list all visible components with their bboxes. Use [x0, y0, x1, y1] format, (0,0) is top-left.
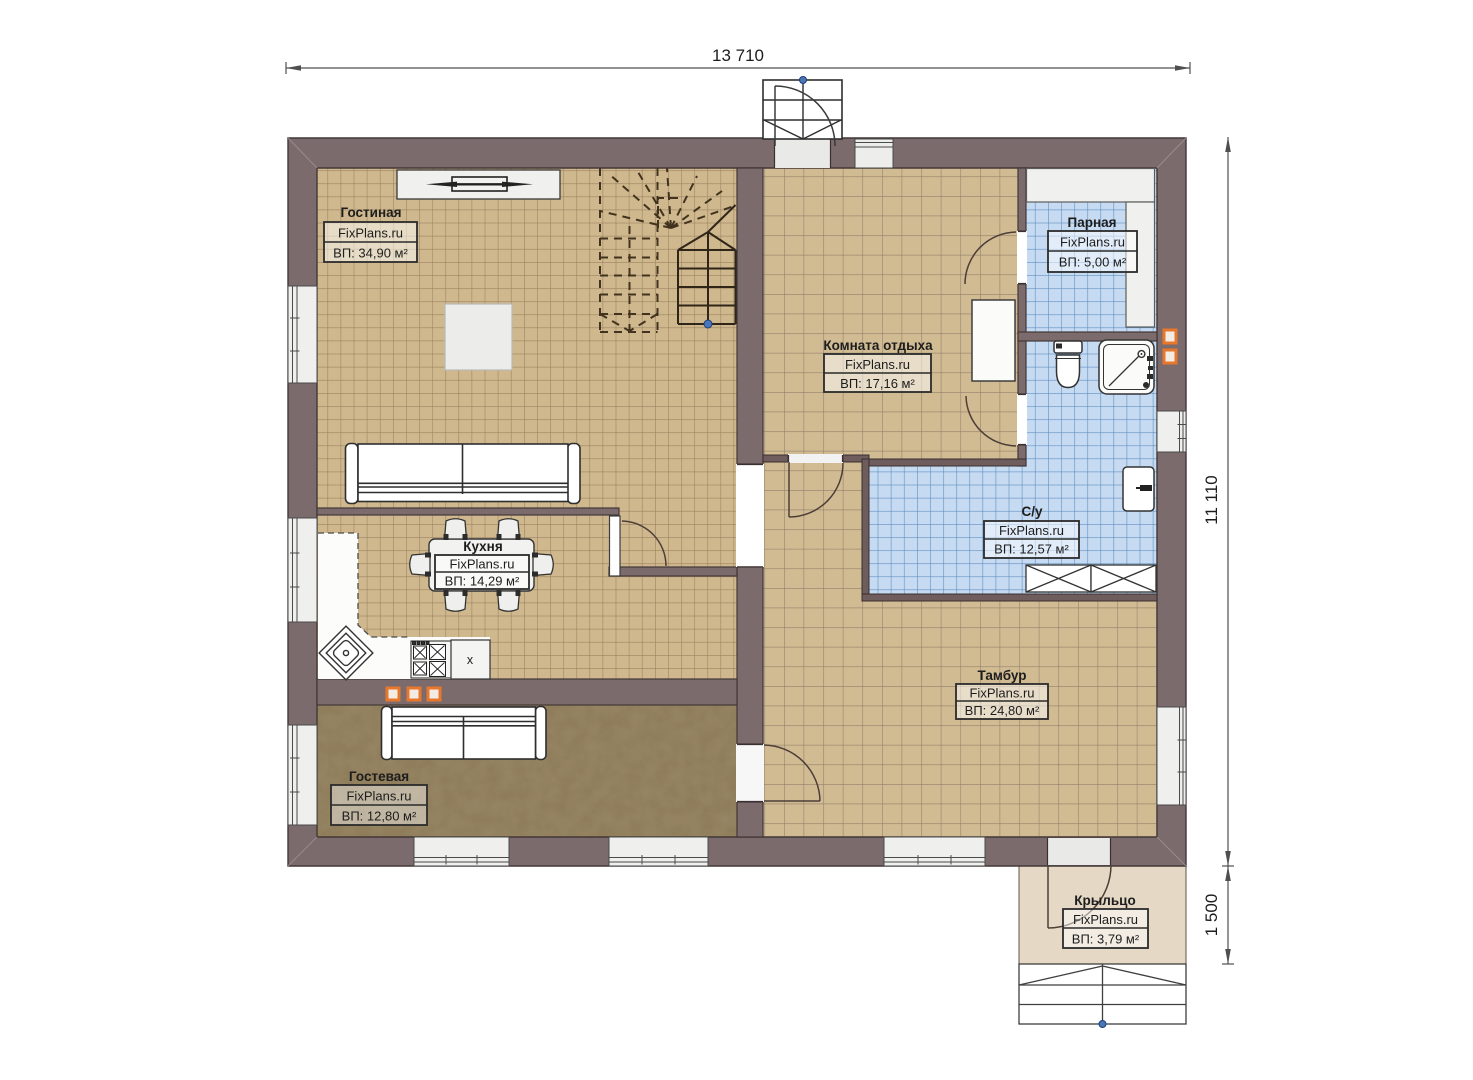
svg-text:Парная: Парная [1068, 215, 1117, 230]
svg-text:FixPlans.ru: FixPlans.ru [338, 226, 403, 241]
svg-text:ВП: 34,90 м²: ВП: 34,90 м² [333, 246, 408, 261]
svg-text:Гостиная: Гостиная [340, 205, 401, 220]
svg-text:Гостевая: Гостевая [349, 769, 409, 784]
svg-text:ВП: 14,29 м²: ВП: 14,29 м² [445, 574, 520, 589]
svg-text:FixPlans.ru: FixPlans.ru [845, 357, 910, 372]
svg-text:ВП: 17,16 м²: ВП: 17,16 м² [840, 376, 915, 391]
svg-text:Крыльцо: Крыльцо [1074, 893, 1135, 908]
svg-text:ВП: 12,80 м²: ВП: 12,80 м² [342, 809, 417, 824]
svg-text:ВП: 5,00 м²: ВП: 5,00 м² [1059, 255, 1127, 270]
svg-text:FixPlans.ru: FixPlans.ru [999, 523, 1064, 538]
svg-text:FixPlans.ru: FixPlans.ru [1060, 235, 1125, 250]
svg-text:1 500: 1 500 [1202, 894, 1221, 937]
svg-text:С/у: С/у [1021, 504, 1043, 519]
svg-text:ВП: 3,79 м²: ВП: 3,79 м² [1072, 932, 1140, 947]
svg-text:FixPlans.ru: FixPlans.ru [1073, 912, 1138, 927]
svg-text:FixPlans.ru: FixPlans.ru [969, 686, 1034, 701]
svg-text:FixPlans.ru: FixPlans.ru [346, 789, 411, 804]
svg-text:11 110: 11 110 [1202, 475, 1221, 524]
svg-text:FixPlans.ru: FixPlans.ru [449, 557, 514, 572]
svg-text:Комната отдыха: Комната отдыха [823, 338, 933, 353]
svg-text:ВП: 24,80 м²: ВП: 24,80 м² [965, 703, 1040, 718]
svg-text:Тамбур: Тамбур [978, 668, 1027, 683]
svg-text:13 710: 13 710 [712, 46, 764, 65]
svg-text:Кухня: Кухня [463, 539, 502, 554]
svg-text:ВП: 12,57 м²: ВП: 12,57 м² [994, 542, 1069, 557]
svg-text:x: x [467, 653, 474, 667]
